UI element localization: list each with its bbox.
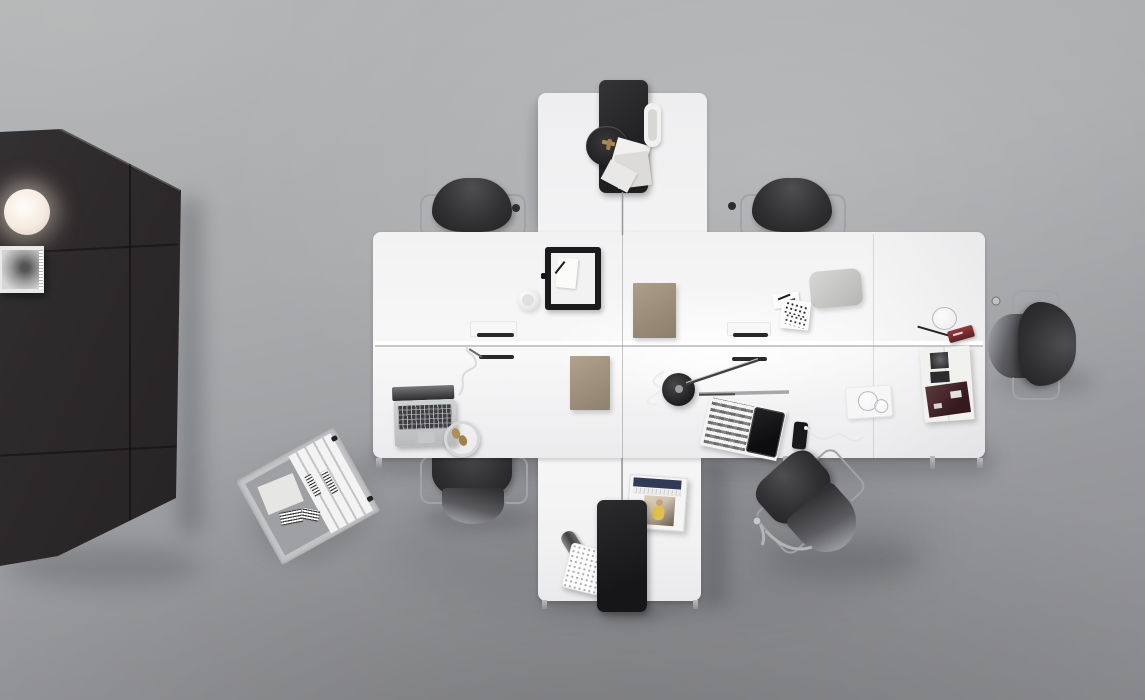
chair-caster: [753, 517, 761, 525]
laptop-cable: [459, 347, 476, 395]
lamp-arm-upper-highlight: [686, 359, 758, 383]
earbud: [804, 426, 808, 430]
lamp-cable: [648, 372, 664, 405]
lamp-arm-upper: [686, 360, 758, 384]
cables-and-chrome-overlay: [0, 0, 1145, 700]
lamp-arm-lower-dark: [699, 394, 735, 395]
chair-knob: [992, 297, 1000, 305]
chair-base-chrome: [760, 523, 812, 549]
office-overhead-photo: [0, 0, 1145, 700]
earbud-cable: [807, 428, 865, 441]
earbud: [862, 433, 866, 437]
chair-knob: [512, 204, 520, 212]
chair-knob: [728, 202, 736, 210]
